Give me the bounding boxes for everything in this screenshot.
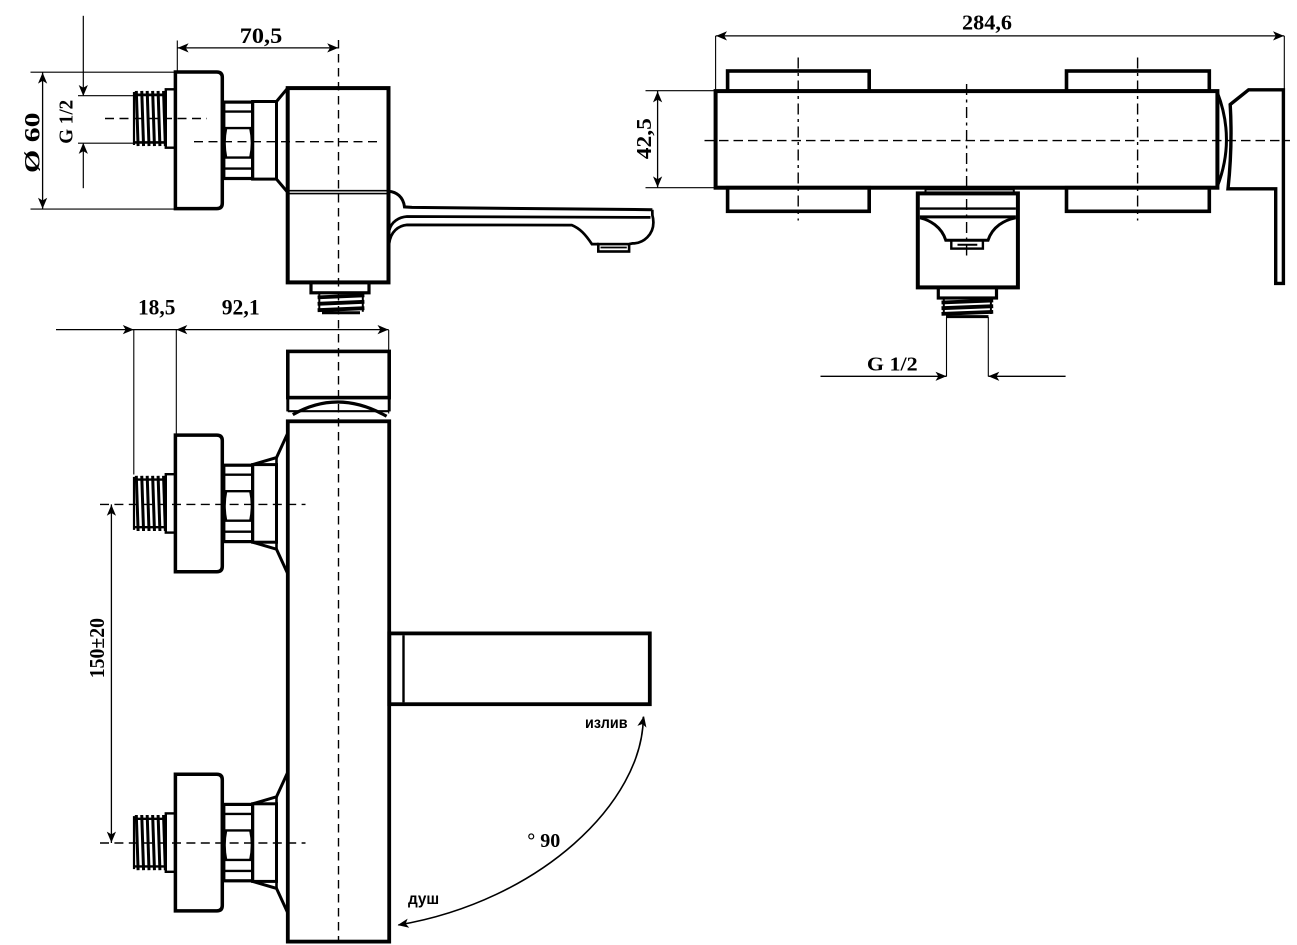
svg-text:92,1: 92,1 — [222, 295, 260, 320]
svg-text:° 90: ° 90 — [527, 830, 560, 852]
svg-text:излив: излив — [585, 715, 628, 732]
svg-text:150±20: 150±20 — [85, 618, 109, 678]
svg-text:70,5: 70,5 — [240, 23, 282, 48]
svg-text:42,5: 42,5 — [632, 118, 656, 159]
svg-text:18,5: 18,5 — [138, 295, 176, 320]
svg-text:284,6: 284,6 — [962, 11, 1012, 35]
svg-text:G 1/2: G 1/2 — [56, 100, 78, 144]
svg-text:Ø 60: Ø 60 — [20, 112, 45, 173]
svg-text:душ: душ — [408, 891, 439, 908]
svg-text:G 1/2: G 1/2 — [867, 353, 918, 375]
